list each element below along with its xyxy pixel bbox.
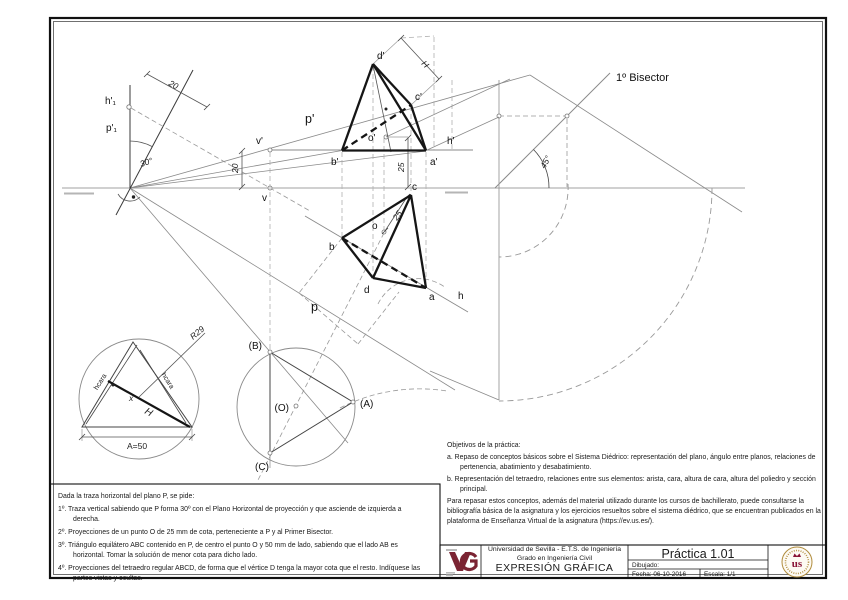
department-logo [445,548,479,577]
label-angle-30: 30° [139,155,155,169]
label-v: v [262,193,267,204]
label-dim-20-steep: 20 [166,78,180,92]
abated-triangle-circle [237,348,355,466]
requirement-3: 3º. Triángulo equilátero ABC contenido e… [58,541,430,561]
projection-rays [130,75,742,443]
objective-a: a. Repaso de conceptos básicos sobre el … [447,453,824,473]
angle-30-arc [130,141,152,147]
objectives-footer: Para repasar estos conceptos, además del… [447,497,824,527]
label-H-abated: H [143,406,155,420]
label-p: p [311,300,318,314]
H-line [108,381,190,427]
label-C-abated: (C) [255,462,269,473]
rotation-arc-small [499,184,568,257]
label-a-prime: a' [430,157,438,168]
label-d-prime: d' [377,51,385,62]
hcara-line-left [86,345,137,424]
label-b: b [329,242,335,253]
label-r29: R29 [188,324,207,342]
label-o: o [372,221,378,232]
requirement-4: 4º. Proyecciones del tetraedro regular A… [58,564,430,584]
titleblock-scale: Escala: 1/1 [704,571,766,578]
label-hcara-left: hcara [93,373,108,392]
label-angle-45: 45° [538,153,553,170]
label-p1-prime: p'₁ [106,123,117,134]
requirements-title: Dada la traza horizontal del plano P, se… [58,492,430,502]
label-O-abated: (O) [275,403,289,414]
label-c-prime: c' [415,92,422,103]
titleblock-drawn-label: Dibujado: [632,562,762,569]
label-x-mark: x [128,393,134,403]
requirement-1: 1º. Traza vertical sabiendo que P forma … [58,505,430,525]
bisector-line [495,73,610,188]
titleblock-course: EXPRESIÓN GRÁFICA [483,562,626,574]
origin-angle-arc [118,194,140,201]
requirements-block: Dada la traza horizontal del plano P, se… [58,492,430,584]
label-first-bisector: 1º Bisector [616,72,669,84]
label-hcara-right: hcara [160,372,175,391]
titleblock-date: Fecha: 06-10-2016 [632,571,698,578]
plan-tetrahedron [342,195,426,288]
dim-H-line [401,38,439,79]
v-prime-marker [268,148,272,152]
label-p-prime: p' [305,112,314,126]
label-A-abated: (A) [360,399,373,410]
plane-trace-origin [116,70,310,215]
objectives-title: Objetivos de la práctica: [447,441,824,451]
label-a: a [429,292,435,303]
seal-monogram: us [792,558,803,570]
label-h: h [458,291,464,302]
objective-b: b. Representación del tetraedro, relacio… [447,475,824,495]
plan-construction [258,194,468,480]
label-B-abated: (B) [249,341,262,352]
requirement-2: 2º. Proyecciones de un punto O de 25 mm … [58,528,430,538]
titleblock-practice-number: Práctica 1.01 [630,547,766,561]
label-v-prime: v' [256,136,263,147]
label-o-prime: o' [368,133,376,144]
rotation-arc-large [499,188,712,401]
point-marker [127,105,131,109]
titleblock-degree: Grado en Ingeniería Civil [483,555,626,562]
label-dim-25-cota: 25 [396,162,406,173]
objectives-block: Objetivos de la práctica: a. Repaso de c… [447,441,824,527]
label-d: d [364,285,370,296]
label-dim-20-cota: 20 [230,163,240,174]
ground-line [62,188,745,194]
label-h1-prime: h'₁ [105,96,116,107]
label-b-prime: b' [331,157,339,168]
label-c: c [412,182,417,193]
dim-20-line [147,74,207,107]
label-h-prime: h' [447,136,455,147]
drawing-sheet: h'₁ p'₁ 30° 20 20 p' v' v h' d' c' b' a'… [0,0,848,600]
hidden-edge-b-c-prime [342,105,411,151]
university-seal: us [780,546,814,578]
label-a50: A=50 [127,441,147,451]
titleblock-university: Universidad de Sevilla - E.T.S. de Ingen… [483,546,626,553]
bisector-construction [430,73,712,401]
